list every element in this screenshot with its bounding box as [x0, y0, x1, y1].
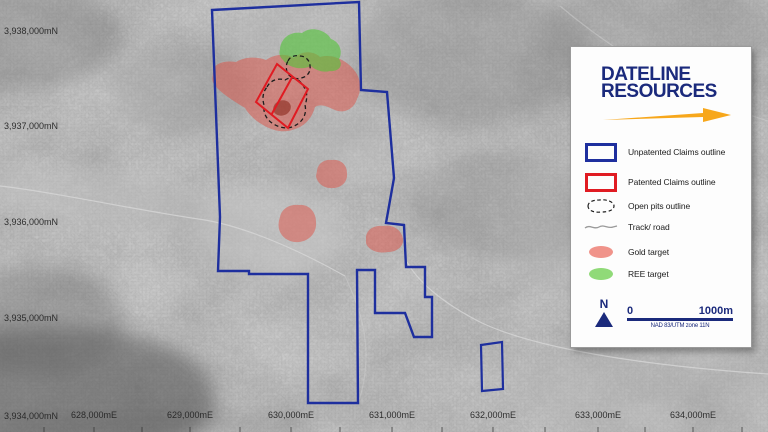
legend-item-track: Track/ road [583, 217, 745, 237]
datum-label: NAD 83/UTM zone 11N [627, 323, 733, 329]
northing-label: 3,934,000mN [4, 411, 58, 421]
gold-target-3 [366, 226, 403, 253]
easting-label: 628,000mE [71, 410, 117, 420]
easting-label: 632,000mE [470, 410, 516, 420]
easting-label: 633,000mE [575, 410, 621, 420]
northing-label: 3,936,000mN [4, 217, 58, 227]
legend-item-ree: REE target [583, 264, 745, 284]
open-pits-swatch-icon [583, 197, 619, 215]
north-arrow: N [589, 297, 619, 327]
legend-item-patented: Patented Claims outline [583, 172, 745, 192]
legend-item-label: REE target [628, 269, 669, 279]
logo-line-2: RESOURCES [601, 83, 717, 100]
ree-target-swatch-icon [583, 268, 619, 280]
patented-claims-swatch-icon [583, 173, 619, 192]
scale-zero-label: 0 [627, 305, 633, 317]
unpatented-claims-swatch-icon [583, 143, 619, 162]
legend-item-open-pits: Open pits outline [583, 196, 745, 216]
easting-label: 630,000mE [268, 410, 314, 420]
north-arrow-icon [595, 312, 613, 327]
legend-item-label: Gold target [628, 247, 669, 257]
north-label: N [589, 297, 619, 311]
company-logo: DATELINE RESOURCES [601, 66, 717, 100]
legend-panel: DATELINE RESOURCES Unpatented Claims out… [570, 46, 752, 348]
legend-item-label: Track/ road [628, 222, 670, 232]
legend-item-label: Unpatented Claims outline [628, 147, 725, 157]
legend-item-unpatented: Unpatented Claims outline [583, 142, 745, 162]
track-road-swatch-icon [583, 222, 619, 232]
easting-label: 629,000mE [167, 410, 213, 420]
scale-max-label: 1000m [699, 305, 733, 317]
northing-label: 3,935,000mN [4, 313, 58, 323]
gold-target-swatch-icon [583, 246, 619, 258]
easting-label: 634,000mE [670, 410, 716, 420]
easting-label: 631,000mE [369, 410, 415, 420]
legend-item-label: Open pits outline [628, 201, 690, 211]
gold-target-1 [316, 160, 347, 188]
scale-bar: 0 1000m NAD 83/UTM zone 11N [627, 305, 733, 329]
northing-label: 3,937,000mN [4, 121, 58, 131]
scale-bar-rule [627, 318, 733, 321]
gold-target-2 [279, 205, 316, 242]
legend-item-gold: Gold target [583, 242, 745, 262]
legend-item-label: Patented Claims outline [628, 177, 715, 187]
logo-arrow-icon [603, 104, 733, 124]
northing-label: 3,938,000mN [4, 26, 58, 36]
map-figure: 3,938,000mN 3,937,000mN 3,936,000mN 3,93… [0, 0, 768, 432]
